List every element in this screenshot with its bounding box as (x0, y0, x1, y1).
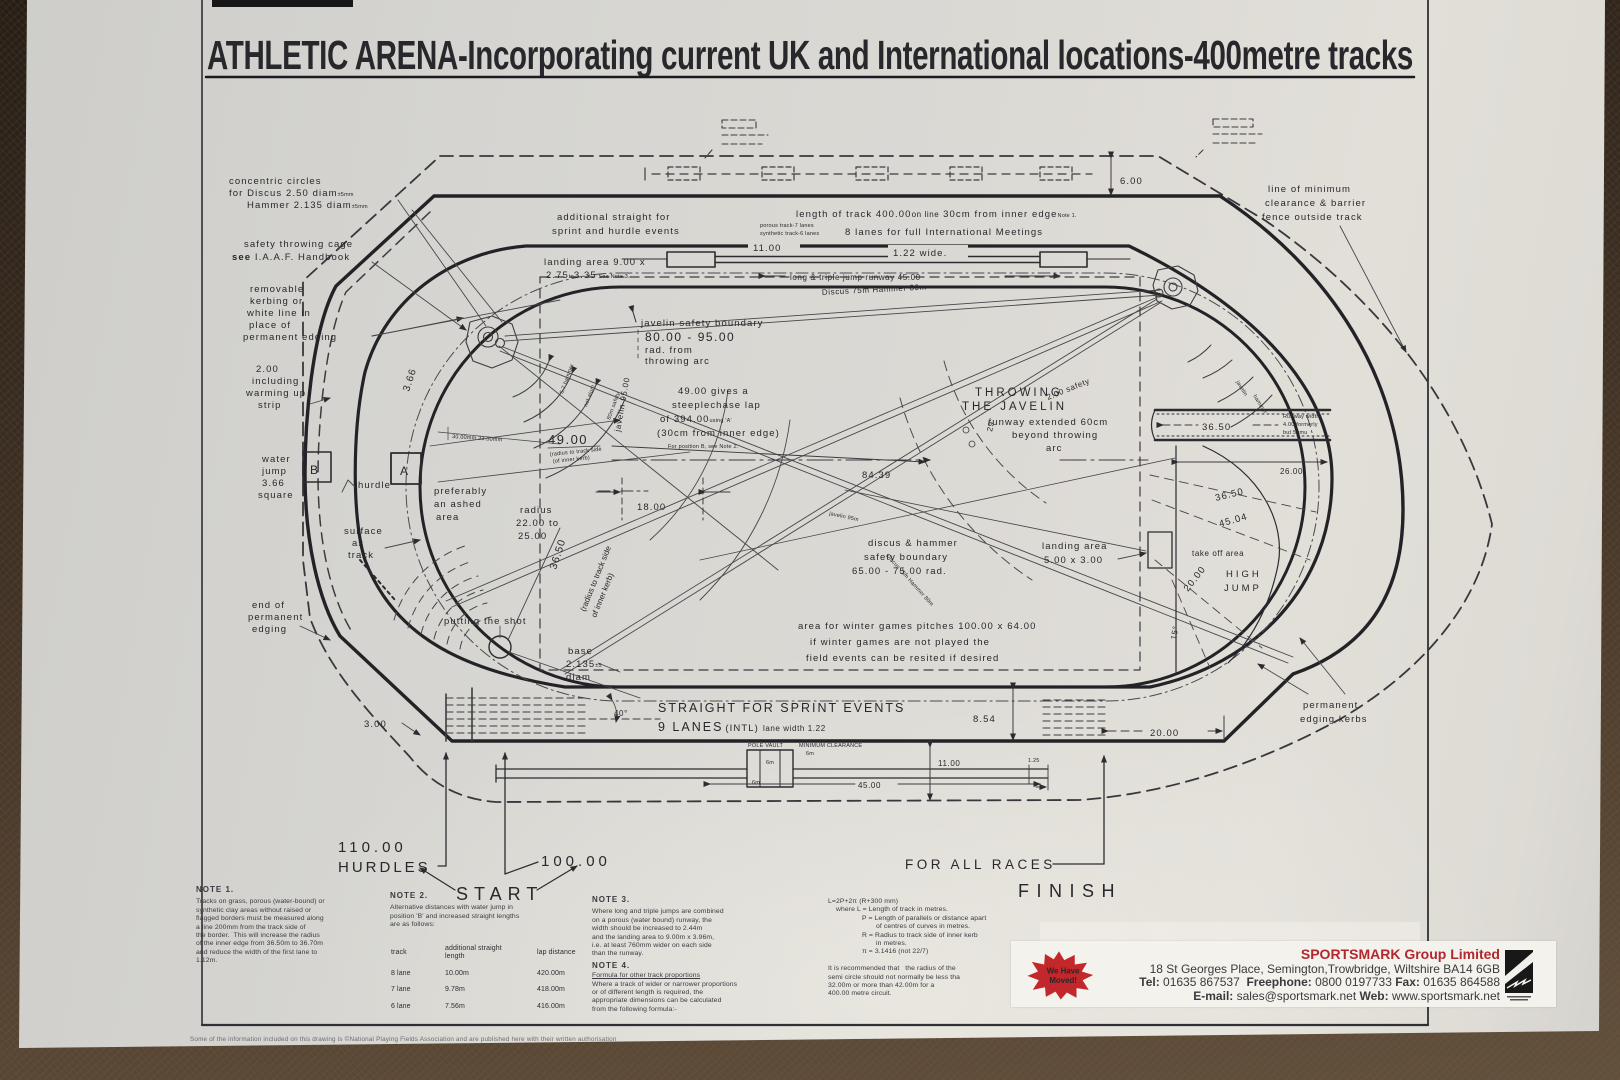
svg-text:but 5omu: but 5omu (1283, 430, 1308, 436)
svg-text:26.00: 26.00 (1280, 467, 1303, 476)
svg-text:22.00 to: 22.00 to (516, 518, 559, 529)
svg-text:base: base (568, 646, 593, 657)
svg-text:radius: radius (520, 505, 552, 516)
svg-text:including: including (252, 376, 299, 387)
svg-text:110.00: 110.00 (338, 839, 407, 856)
svg-text:5.00 x 3.00: 5.00 x 3.00 (1044, 555, 1103, 566)
svg-text:area for winter games pitches: area for winter games pitches 100.00 x 6… (798, 621, 1037, 632)
svg-text:length of track 400.00on line: length of track 400.00on line 30cm from … (796, 209, 1077, 220)
svg-text:track: track (348, 550, 374, 561)
svg-text:area: area (436, 512, 459, 523)
svg-text:edging kerbs: edging kerbs (1300, 714, 1368, 725)
svg-text:strip: strip (258, 400, 281, 411)
svg-text:84.39: 84.39 (862, 470, 891, 481)
svg-text:49.00 gives a: 49.00 gives a (678, 386, 749, 397)
svg-text:edging: edging (252, 624, 287, 635)
svg-text:HURDLES: HURDLES (338, 859, 431, 876)
svg-text:FINISH: FINISH (1018, 881, 1122, 901)
svg-text:take off area: take off area (1192, 549, 1244, 558)
svg-text:javelin 95m: javelin 95m (828, 511, 860, 523)
svg-text:an ashed: an ashed (434, 499, 482, 510)
svg-text:100.00: 100.00 (541, 853, 611, 870)
svg-text:removable: removable (250, 284, 304, 295)
svg-text:25.00: 25.00 (518, 531, 547, 542)
svg-text:JUMP: JUMP (1224, 583, 1262, 594)
svg-text:beyond throwing: beyond throwing (1012, 430, 1098, 441)
svg-text:javelin safety boundary: javelin safety boundary (640, 318, 763, 329)
svg-text:15°: 15° (1169, 625, 1180, 640)
svg-text:2.75to3.35 See Note 3.: 2.75to3.35 See Note 3. (546, 270, 630, 281)
svg-text:3.66: 3.66 (262, 478, 285, 489)
svg-text:not alum: not alum (583, 384, 596, 408)
svg-text:water: water (261, 454, 291, 465)
svg-text:permanent edging: permanent edging (243, 332, 337, 343)
svg-text:11.00: 11.00 (938, 759, 960, 768)
svg-text:jump: jump (261, 466, 287, 477)
svg-text:36.50: 36.50 (547, 537, 568, 570)
svg-text:javelin: javelin (1234, 379, 1249, 397)
svg-text:36.50: 36.50 (1202, 422, 1231, 433)
svg-text:permanent: permanent (248, 612, 303, 623)
svg-text:for Discus 2.50 diam±5mm: for Discus 2.50 diam±5mm (229, 188, 354, 199)
svg-text:warming up: warming up (245, 388, 306, 399)
svg-text:as: as (352, 538, 364, 549)
svg-text:45.00: 45.00 (858, 781, 881, 790)
svg-text:line of minimum: line of minimum (1268, 184, 1351, 195)
svg-text:49.00: 49.00 (548, 432, 588, 447)
svg-text:20.00: 20.00 (1182, 564, 1209, 594)
svg-text:landing area: landing area (1042, 541, 1108, 552)
svg-text:1.25: 1.25 (1028, 758, 1040, 764)
svg-text:29°: 29° (985, 417, 997, 432)
svg-text:6.00: 6.00 (1120, 176, 1143, 187)
svg-text:of 394.00using 'A': of 394.00using 'A' (660, 414, 732, 425)
svg-text:end of: end of (252, 600, 285, 611)
svg-text:field events can be resited if: field events can be resited if desired (806, 653, 999, 664)
svg-text:kerbing or: kerbing or (250, 296, 303, 307)
svg-text:putting the shot: putting the shot (444, 616, 527, 627)
svg-text:THE JAVELIN: THE JAVELIN (962, 401, 1067, 413)
svg-text:landing area 9.00 x: landing area 9.00 x (544, 257, 646, 268)
svg-text:surface: surface (344, 526, 383, 537)
svg-text:Discus 75m Hammer 80m: Discus 75m Hammer 80m (822, 283, 927, 297)
svg-text:STRAIGHT FOR SPRINT EVENTS: STRAIGHT FOR SPRINT EVENTS (658, 701, 905, 715)
svg-text:5.7 hammer: 5.7 hammer (559, 363, 575, 395)
svg-text:discus & hammer: discus & hammer (868, 538, 958, 549)
svg-text:fence outside track: fence outside track (1262, 212, 1363, 223)
svg-text:2.00: 2.00 (256, 364, 279, 375)
svg-text:square: square (258, 490, 294, 501)
svg-text:POLE VAULT: POLE VAULT (748, 743, 784, 749)
svg-text:hurdle: hurdle (358, 480, 391, 491)
svg-text:see I.A.A.F. Handbook: see I.A.A.F. Handbook (232, 252, 350, 263)
svg-text:arc: arc (1046, 443, 1063, 454)
svg-text:safety throwing cage: safety throwing cage (244, 239, 353, 250)
svg-text:HIGH: HIGH (1226, 569, 1262, 580)
svg-text:45.04: 45.04 (1218, 511, 1249, 530)
svg-text:For position B, see Note 2.: For position B, see Note 2. (668, 444, 739, 450)
svg-text:porous track-7 lanes: porous track-7 lanes (760, 223, 814, 229)
svg-text:safety boundary: safety boundary (864, 552, 948, 563)
svg-text:runway extended 60cm: runway extended 60cm (988, 417, 1108, 428)
svg-text:65.00 - 75.00 rad.: 65.00 - 75.00 rad. (852, 566, 947, 577)
svg-text:steeplechase lap: steeplechase lap (672, 400, 761, 411)
svg-text:A: A (400, 464, 408, 478)
svg-text:2.135±5: 2.135±5 (566, 659, 602, 670)
svg-text:9 LANES(INTL)lane width 1.22: 9 LANES(INTL)lane width 1.22 (658, 720, 826, 734)
svg-text:if winter games are not played: if winter games are not played the (810, 637, 990, 648)
svg-text:concentric circles: concentric circles (229, 176, 322, 187)
svg-text:B: B (310, 463, 318, 477)
svg-text:20.00: 20.00 (1150, 728, 1179, 739)
svg-text:FOR ALL RACES: FOR ALL RACES (905, 857, 1056, 872)
svg-text:sprint and hurdle events: sprint and hurdle events (552, 226, 680, 237)
svg-text:8.54: 8.54 (973, 714, 996, 725)
svg-text:4.00 formerly: 4.00 formerly (1283, 422, 1318, 428)
svg-text:ATHLETIC ARENA-Incorporating c: ATHLETIC ARENA-Incorporating current UK … (207, 32, 1413, 78)
svg-text:throwing arc: throwing arc (645, 356, 710, 367)
svg-text:6m: 6m (806, 751, 814, 757)
svg-text:8 lanes for full Internationa: 8 lanes for full International Meetings (845, 227, 1043, 238)
svg-text:white line in: white line in (246, 308, 311, 319)
svg-text:6m: 6m (752, 780, 760, 786)
svg-text:1.22 wide.: 1.22 wide. (893, 248, 947, 259)
svg-text:THROWING: THROWING (975, 387, 1063, 399)
svg-text:We Have: We Have (1047, 966, 1080, 975)
svg-text:11.00: 11.00 (753, 243, 782, 254)
svg-text:Runway width: Runway width (1283, 414, 1320, 420)
svg-text:rad. from: rad. from (645, 345, 693, 356)
svg-text:3.66: 3.66 (401, 367, 419, 393)
svg-text:permanent: permanent (1303, 700, 1358, 711)
svg-text:MINIMUM CLEARANCE: MINIMUM CLEARANCE (799, 743, 862, 749)
svg-text:36.50: 36.50 (1214, 486, 1245, 504)
svg-text:Hammer 2.135 diam±5mm: Hammer 2.135 diam±5mm (247, 200, 368, 211)
svg-text:preferably: preferably (434, 486, 487, 497)
svg-text:(30cm from inner edge): (30cm from inner edge) (657, 428, 780, 439)
svg-text:synthetic track-6 lanes: synthetic track-6 lanes (760, 231, 819, 237)
svg-text:6m: 6m (766, 760, 774, 766)
svg-text:additional straight for: additional straight for (557, 212, 671, 223)
svg-text:3.00: 3.00 (364, 719, 387, 730)
svg-text:Moved!: Moved! (1049, 976, 1077, 985)
svg-text:80.00 - 95.00: 80.00 - 95.00 (645, 330, 735, 344)
svg-text:18.00: 18.00 (637, 502, 666, 513)
svg-text:clearance & barrier: clearance & barrier (1265, 198, 1366, 209)
svg-text:diam: diam (566, 672, 591, 683)
svg-text:place of: place of (249, 320, 291, 331)
